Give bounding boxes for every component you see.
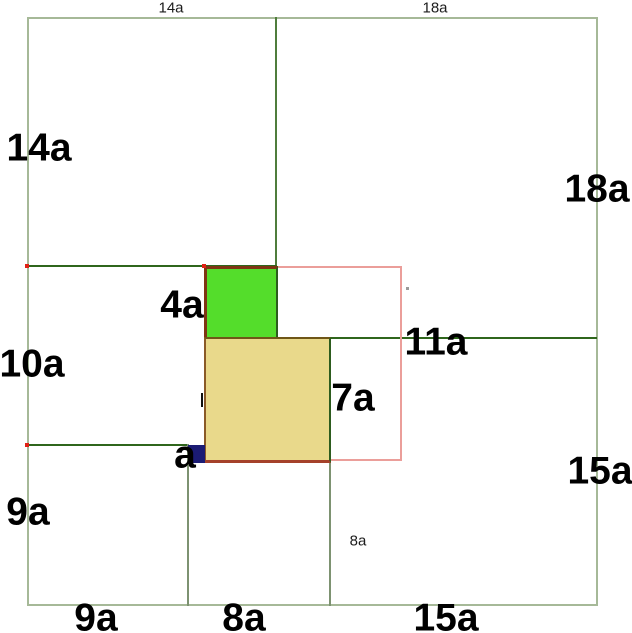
label-green-4a: 4a [160,286,203,325]
label-top-14a: 14a [158,1,183,16]
label-pink-11a: 11a [405,323,468,362]
red-dot-left-upper [25,264,29,268]
tan-7a-square [204,337,331,463]
red-dot-left-lower [25,443,29,447]
red-dot-pink-corner [202,264,206,268]
label-bottom-9a: 9a [74,599,117,633]
label-unit-a: a [174,436,196,475]
label-top-18a: 18a [422,1,447,16]
label-tan-7a: 7a [331,379,374,418]
divider-15a-left-vertical [329,461,331,606]
divider-14a-18a-vertical [275,17,277,268]
green-4a-square [204,266,278,339]
label-right-18a: 18a [564,170,629,209]
stray-dot [406,287,409,290]
label-right-15a: 15a [567,452,632,491]
label-bottom-15a: 15a [413,599,478,633]
label-bottom-8a: 8a [222,599,265,633]
label-left-9a: 9a [6,493,49,532]
squared-rectangle-diagram: 14a 18a 8a 14a 10a 9a 18a 15a 9a 8a 15a … [0,0,632,633]
label-left-10a: 10a [0,345,65,384]
stray-mark [201,393,203,407]
label-left-14a: 14a [6,129,71,168]
label-inner-8a-small: 8a [350,534,367,549]
divider-10a-bottom-horizontal [27,444,189,446]
